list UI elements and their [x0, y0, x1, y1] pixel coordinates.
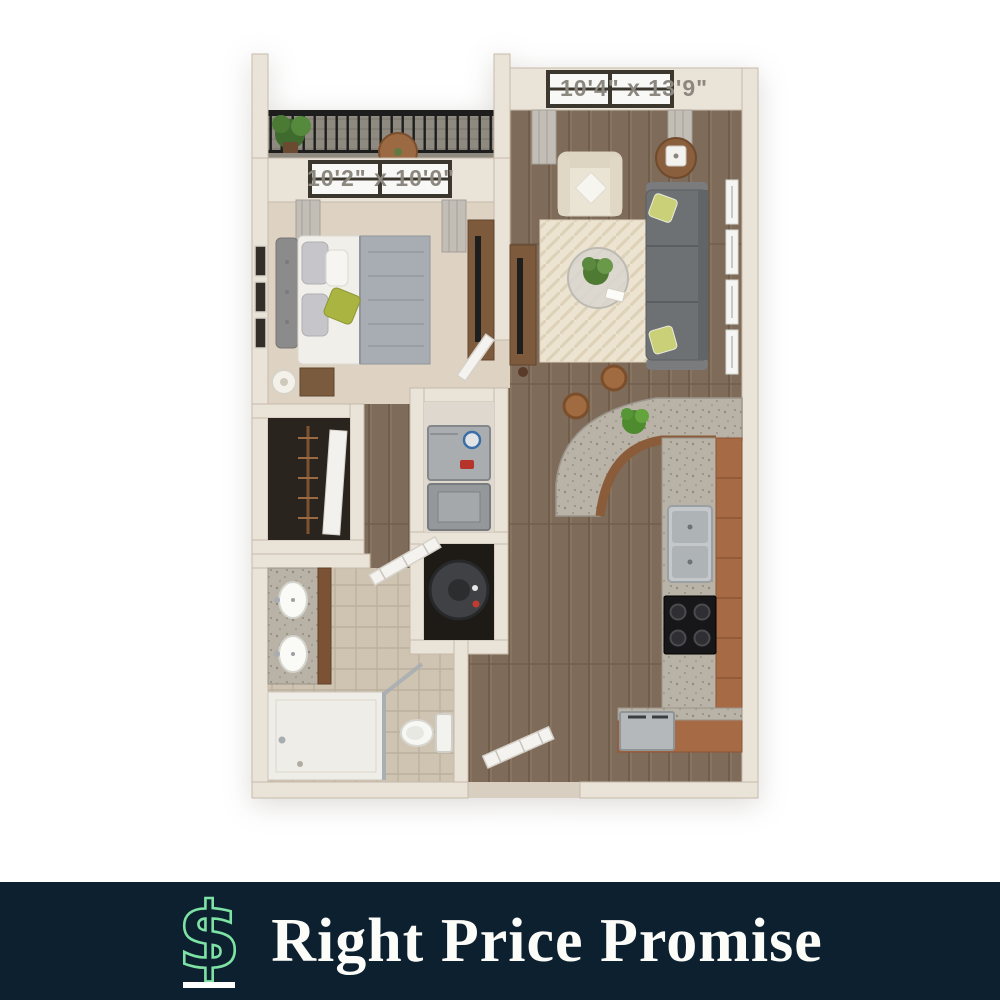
- water-heater: [430, 561, 488, 619]
- curtain: [442, 200, 466, 252]
- pillow: [302, 294, 328, 336]
- pillow-white: [326, 250, 348, 286]
- side-table: [656, 138, 696, 178]
- vase: [518, 367, 528, 377]
- entry-threshold: [468, 782, 580, 798]
- doorway-floor: [494, 340, 510, 388]
- kitchen-sink: [668, 506, 712, 582]
- hall-floor: [364, 404, 410, 554]
- armchair: [558, 152, 622, 216]
- water-heater-closet: [424, 544, 494, 640]
- floor-plan: [210, 40, 790, 820]
- stove: [664, 596, 716, 654]
- curtain: [532, 110, 556, 164]
- sofa: [646, 182, 708, 370]
- tv: [475, 236, 481, 342]
- refrigerator: [620, 712, 674, 750]
- bedroom-lamp: [272, 370, 296, 394]
- bed: [276, 236, 430, 364]
- dryer: [428, 484, 490, 530]
- walk-in-closet: [268, 418, 350, 540]
- bedroom-wall-art: [255, 246, 266, 348]
- washer: [428, 426, 490, 480]
- shower-drain: [297, 761, 303, 767]
- living-tv-console: [510, 245, 536, 377]
- shower-fixture: [279, 737, 286, 744]
- pillow: [302, 242, 328, 284]
- bathroom-vanity: [268, 568, 331, 684]
- banner-title: Right Price Promise: [271, 906, 823, 977]
- faucet: [274, 597, 280, 603]
- dollar-underline: [183, 982, 235, 988]
- right-price-promise-banner: $ Right Price Promise: [0, 882, 1000, 1000]
- nightstand: [300, 368, 334, 396]
- coffee-table: [568, 248, 628, 308]
- svg-text:$: $: [177, 892, 241, 990]
- faucet: [274, 651, 280, 657]
- floor-plan-rendering: [210, 40, 790, 820]
- page: 10'4" x 13'9" 10'2" x 10'0" $ Right Pric…: [0, 0, 1000, 1000]
- tv: [517, 258, 523, 354]
- laundry-closet: [424, 402, 494, 532]
- dollar-sign-icon: $: [177, 892, 241, 990]
